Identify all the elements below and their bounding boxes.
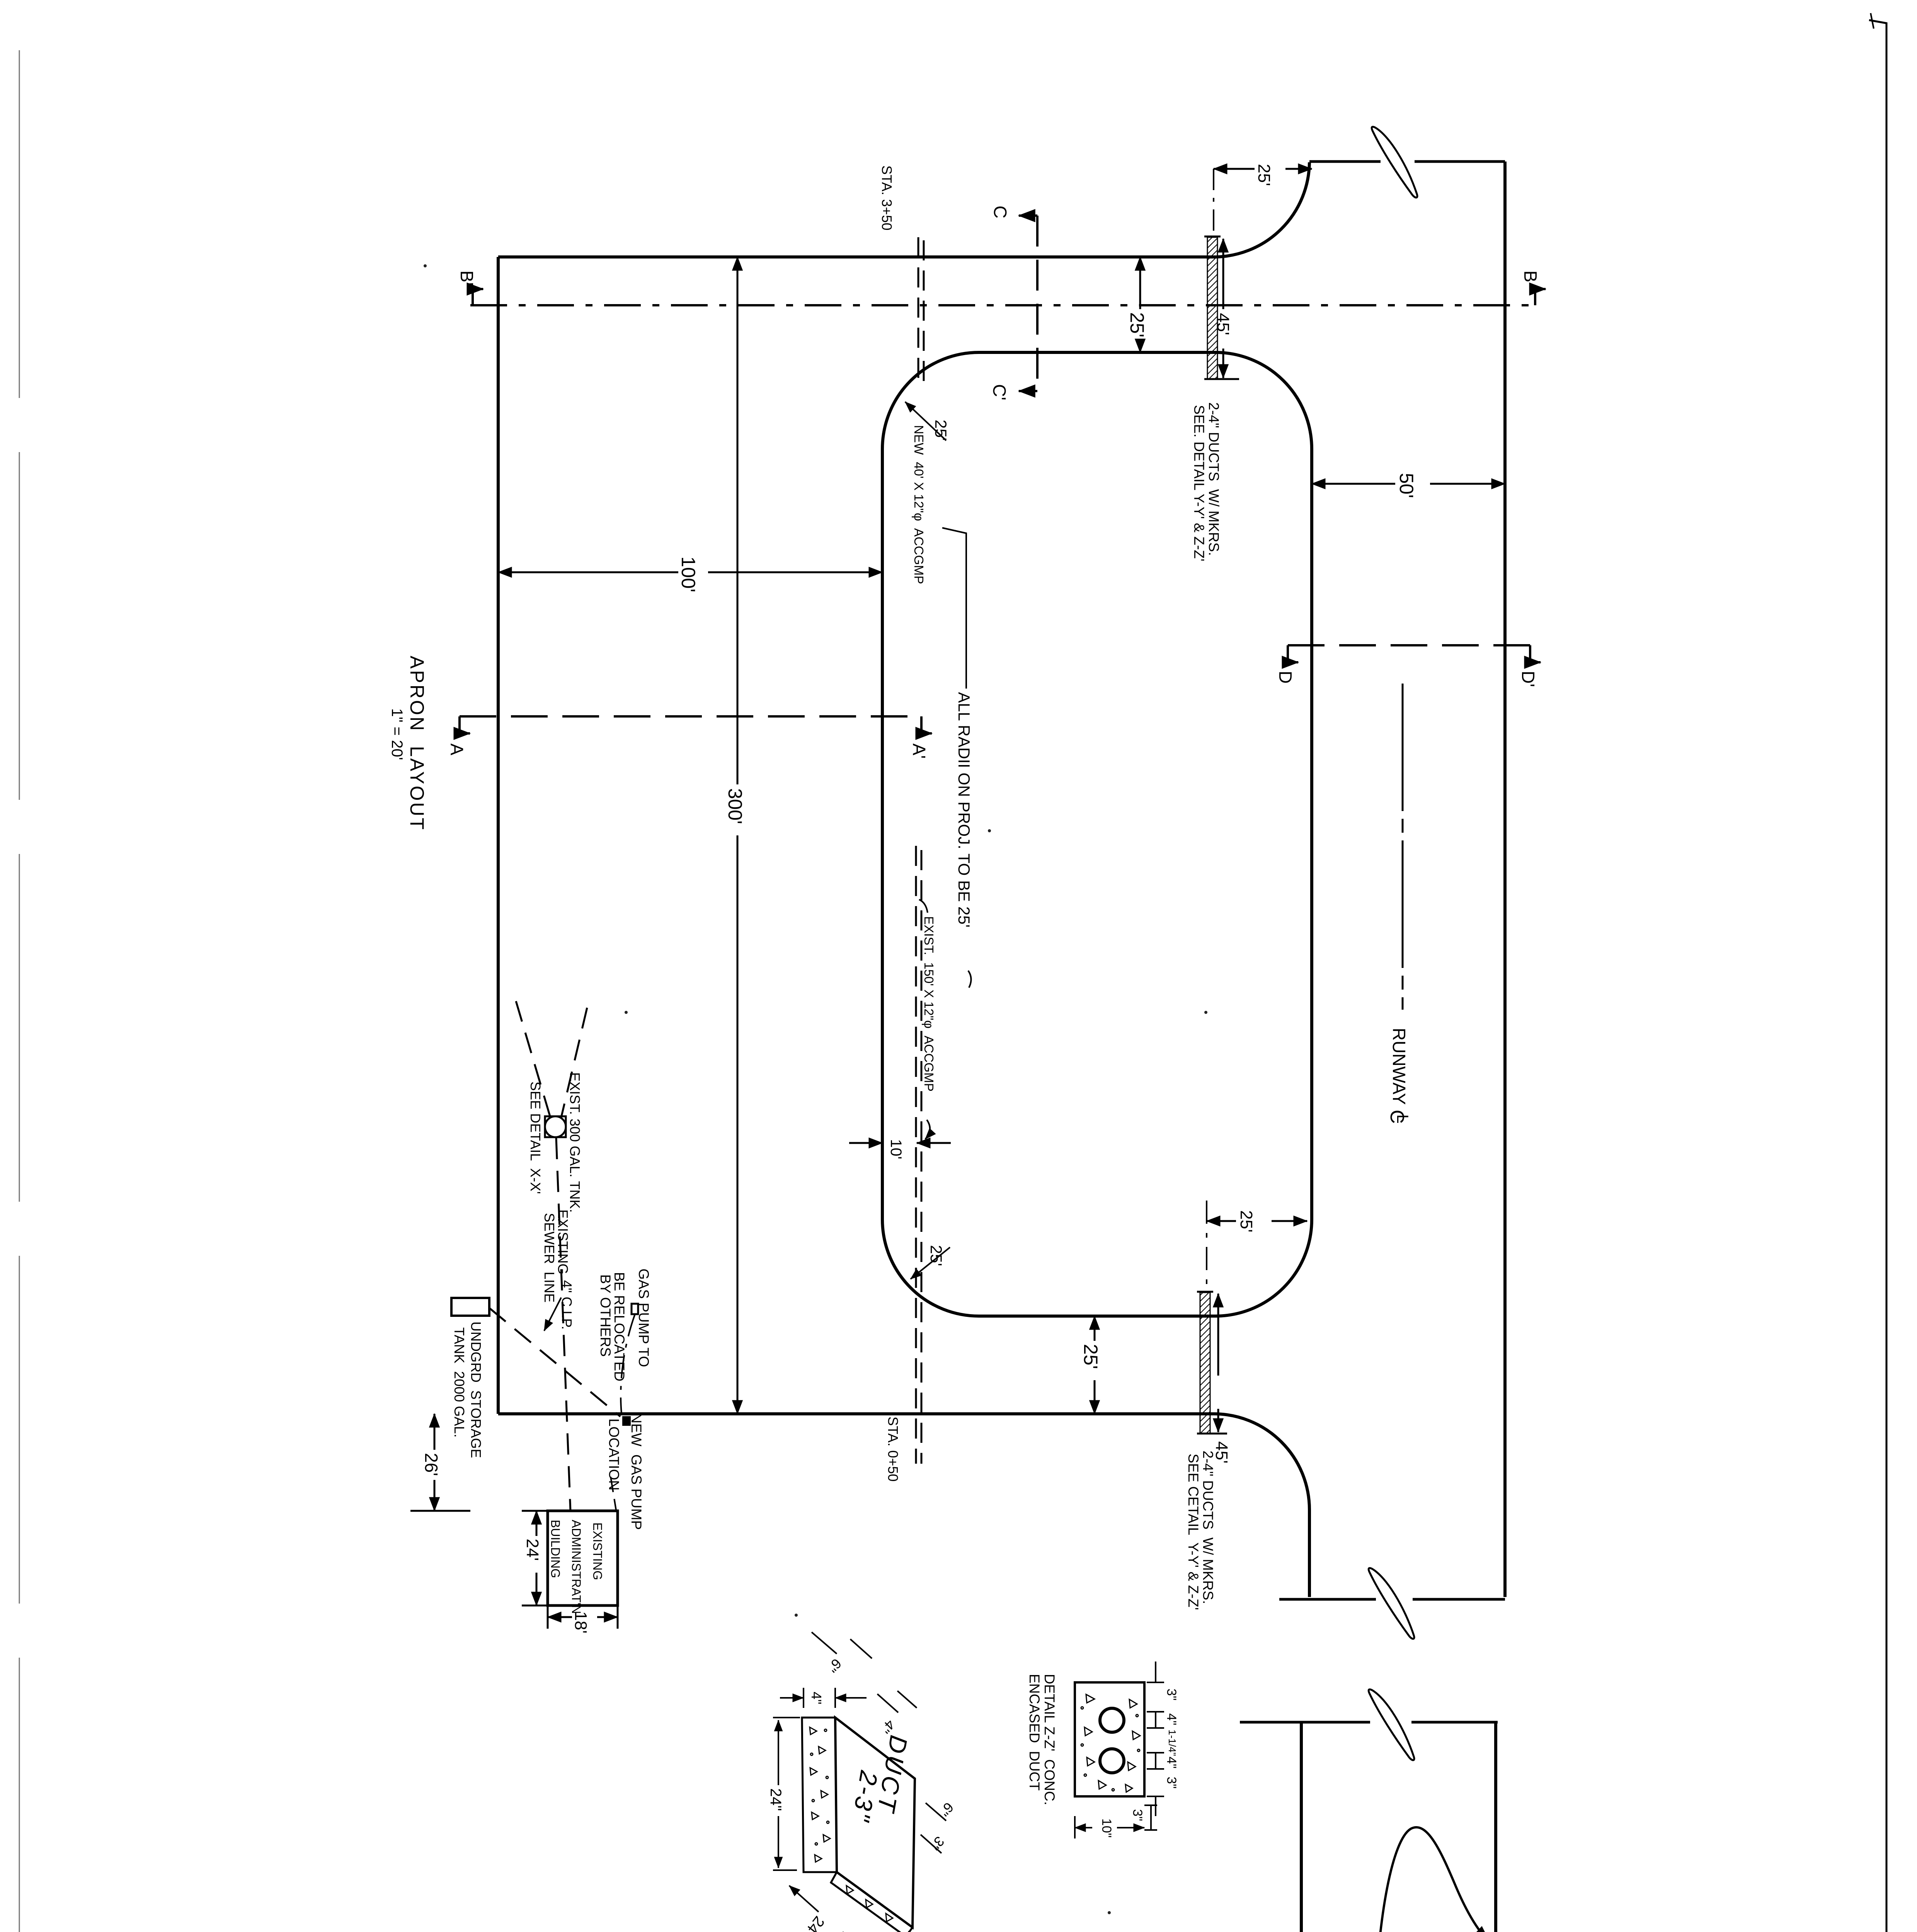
svg-text:STA. 0+50: STA. 0+50 <box>885 1417 901 1481</box>
svg-text:ADMINISTRAT'N: ADMINISTRAT'N <box>569 1520 583 1614</box>
svg-text:45': 45' <box>1214 313 1233 335</box>
svg-text:TANK 2000 GAL.: TANK 2000 GAL. <box>451 1327 467 1437</box>
svg-text:25': 25' <box>1080 1344 1102 1369</box>
svg-text:GAS PUMP TO: GAS PUMP TO <box>636 1269 652 1367</box>
svg-text:3": 3" <box>1130 1809 1145 1821</box>
svg-text:RUNWAY: RUNWAY <box>1389 1028 1409 1105</box>
svg-text:ALL RADII ON PROJ. TO BE 25': ALL RADII ON PROJ. TO BE 25' <box>955 692 973 927</box>
svg-text:BUILDING: BUILDING <box>548 1520 562 1578</box>
svg-text:26': 26' <box>421 1453 441 1476</box>
svg-text:D': D' <box>1518 671 1538 687</box>
svg-text:4": 4" <box>1164 1713 1179 1725</box>
svg-text:SEE CETAIL Y-Y' & Z-Z': SEE CETAIL Y-Y' & Z-Z' <box>1185 1454 1201 1610</box>
svg-text:10": 10" <box>1099 1818 1114 1838</box>
svg-text:C': C' <box>989 384 1010 400</box>
svg-text:ENCASED DUCT: ENCASED DUCT <box>1027 1674 1042 1791</box>
svg-text:SEE. DETAIL Y-Y' & Z-Z': SEE. DETAIL Y-Y' & Z-Z' <box>1191 405 1207 561</box>
svg-text:25': 25' <box>927 1245 945 1266</box>
svg-text:A: A <box>447 743 467 755</box>
svg-text:2-4" DUCTS W/ MKRS.: 2-4" DUCTS W/ MKRS. <box>1206 402 1222 556</box>
svg-text:B': B' <box>457 270 477 286</box>
svg-text:D: D <box>1275 671 1296 684</box>
svg-text:STA. 3+50: STA. 3+50 <box>879 165 895 230</box>
svg-text:4": 4" <box>1164 1757 1179 1769</box>
svg-text:C: C <box>990 206 1010 218</box>
svg-text:25': 25' <box>1126 312 1148 337</box>
svg-text:DETAIL Z-Z' CONC.: DETAIL Z-Z' CONC. <box>1042 1674 1057 1805</box>
svg-text:10': 10' <box>887 1139 904 1159</box>
svg-text:300': 300' <box>724 788 746 824</box>
svg-text:SEWER LINE: SEWER LINE <box>541 1213 557 1303</box>
svg-text:NEW 40' X 12"φ ACCGMP: NEW 40' X 12"φ ACCGMP <box>912 425 926 584</box>
svg-text:BE RELOCATED: BE RELOCATED <box>611 1272 627 1381</box>
svg-text:L: L <box>1394 1114 1412 1123</box>
svg-text:EXIST. 300 GAL. TNK.: EXIST. 300 GAL. TNK. <box>567 1072 583 1213</box>
svg-text:100': 100' <box>678 556 699 592</box>
svg-text:UNDGRD STORAGE: UNDGRD STORAGE <box>468 1321 484 1458</box>
svg-text:50': 50' <box>1396 473 1417 498</box>
svg-text:NEW GAS PUMP: NEW GAS PUMP <box>628 1413 644 1530</box>
svg-text:LOCATION: LOCATION <box>606 1418 622 1490</box>
svg-text:BY OTHERS: BY OTHERS <box>598 1274 613 1357</box>
svg-text:A': A' <box>909 743 929 759</box>
svg-text:B: B <box>1520 270 1541 282</box>
svg-text:APRON LAYOUT: APRON LAYOUT <box>406 656 428 831</box>
svg-text:EXISTING: EXISTING <box>591 1522 604 1580</box>
svg-text:25': 25' <box>932 420 950 441</box>
svg-text:SEE DETAIL X-X': SEE DETAIL X-X' <box>528 1082 543 1194</box>
svg-text:1" = 20': 1" = 20' <box>388 708 405 760</box>
svg-text:3": 3" <box>1164 1689 1179 1701</box>
svg-text:3": 3" <box>1164 1777 1179 1789</box>
svg-text:18': 18' <box>571 1611 590 1633</box>
svg-text:EXIST. 150' X 12"φ ACCGMP: EXIST. 150' X 12"φ ACCGMP <box>922 916 936 1092</box>
svg-text:24': 24' <box>523 1539 542 1561</box>
svg-text:25': 25' <box>1237 1210 1256 1232</box>
svg-text:4": 4" <box>809 1692 824 1704</box>
svg-text:4" C.I.P.: 4" C.I.P. <box>559 1280 575 1330</box>
svg-text:25': 25' <box>1255 164 1273 186</box>
svg-text:2-4" DUCTS W/ MKRS.: 2-4" DUCTS W/ MKRS. <box>1200 1451 1216 1604</box>
svg-text:1-1/4": 1-1/4" <box>1166 1730 1178 1756</box>
svg-text:24": 24" <box>767 1788 784 1811</box>
